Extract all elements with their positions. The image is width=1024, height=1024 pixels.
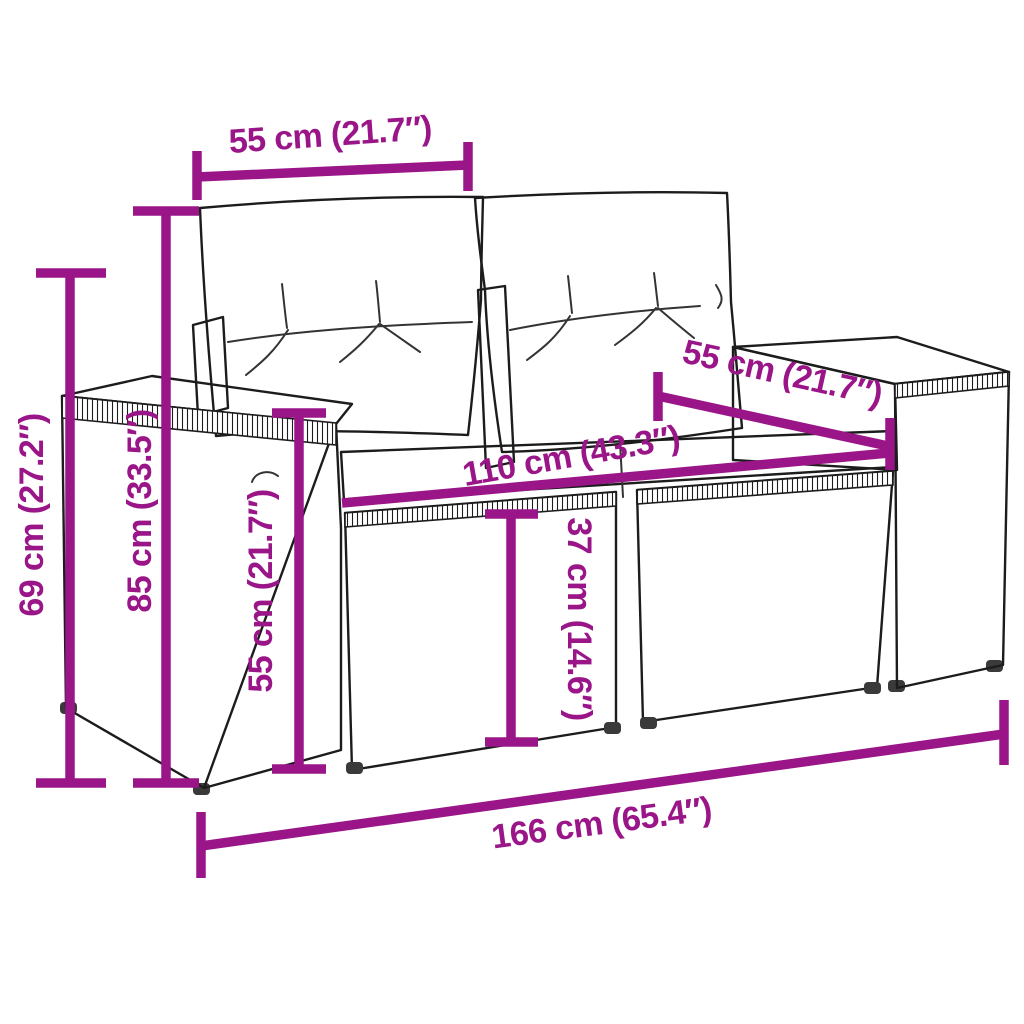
back-cushion-left-creases [228,281,472,375]
foot [346,762,363,774]
foot [640,717,657,729]
back-frame-middle-strip [478,286,514,468]
dimension-seat-height: 37 cm (14.6″) [485,514,598,742]
sofa-drawing [60,192,1009,795]
product-diagram-svg: 55 cm (21.7″) 69 cm (27.2″) 85 cm (33.5″… [0,0,1024,1024]
left-armrest-weave-curl [252,472,278,482]
dimension-annotations: 55 cm (21.7″) 69 cm (27.2″) 85 cm (33.5″… [13,109,1004,878]
dimension-total-width: 166 cm (65.4″) [201,700,1004,878]
dimension-back-height: 85 cm (33.5″) [121,211,199,783]
dimension-label-seat-height: 37 cm (14.6″) [560,517,598,720]
foot [864,682,881,694]
back-cushion-right [475,192,742,452]
dimension-line [197,165,468,177]
foot [604,722,621,734]
dimension-diagram: 55 cm (21.7″) 69 cm (27.2″) 85 cm (33.5″… [0,0,1024,1024]
dimension-label-arm-height: 55 cm (21.7″) [242,489,280,692]
sofa-feet [60,660,1003,795]
dimension-arm-height: 55 cm (21.7″) [242,413,326,769]
dimension-total-height: 69 cm (27.2″) [13,273,106,783]
dimension-arm-depth-top: 55 cm (21.7″) [197,109,468,200]
seat-base-right [637,471,893,722]
dimension-seat-depth: 55 cm (21.7″) [658,333,890,470]
dimension-label-back-height: 85 cm (33.5″) [121,409,159,612]
dimension-label-total-height: 69 cm (27.2″) [13,413,51,616]
right-armrest-front-face [895,372,1009,688]
dimension-label-arm-depth-top: 55 cm (21.7″) [228,109,433,161]
right-armrest-rim [895,372,1009,398]
back-cushion-left [200,197,483,436]
